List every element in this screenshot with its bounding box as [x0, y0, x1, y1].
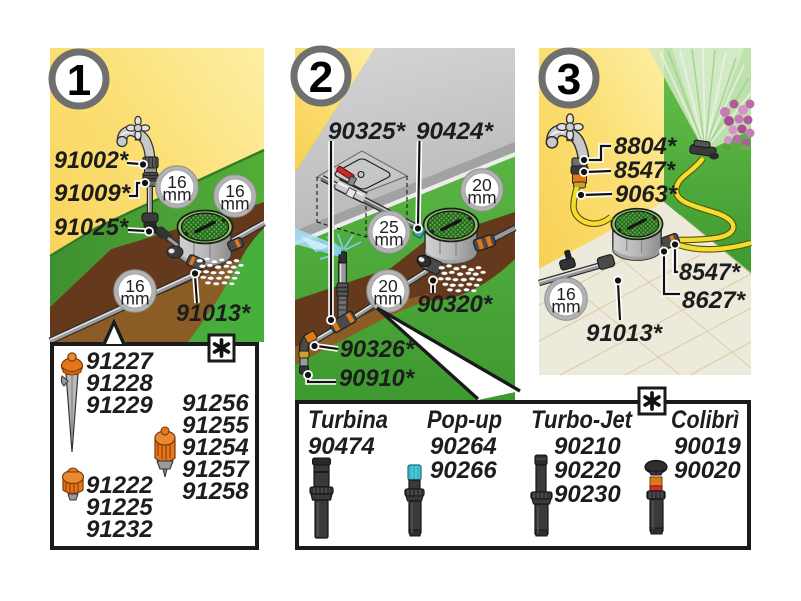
svg-text:91232: 91232 — [86, 516, 153, 543]
svg-text:90020: 90020 — [674, 457, 741, 484]
svg-text:90320*: 90320* — [417, 291, 494, 318]
svg-text:90220: 90220 — [554, 457, 621, 484]
svg-text:90210: 90210 — [554, 433, 621, 460]
svg-text:8804*: 8804* — [614, 133, 678, 160]
svg-text:9063*: 9063* — [615, 181, 679, 208]
svg-text:2: 2 — [309, 53, 333, 102]
svg-text:90326*: 90326* — [340, 336, 416, 363]
svg-text:mm: mm — [220, 194, 249, 214]
svg-text:8547*: 8547* — [679, 259, 742, 286]
svg-text:Pop-up: Pop-up — [427, 406, 502, 434]
svg-text:90424*: 90424* — [416, 118, 495, 145]
svg-text:91025*: 91025* — [54, 214, 130, 241]
svg-text:91258: 91258 — [182, 478, 249, 505]
svg-text:mm: mm — [374, 230, 403, 250]
svg-text:90474: 90474 — [308, 433, 375, 460]
svg-text:mm: mm — [467, 188, 496, 208]
svg-text:mm: mm — [551, 297, 580, 317]
svg-text:8547*: 8547* — [614, 157, 677, 184]
svg-text:mm: mm — [120, 289, 149, 309]
svg-text:90019: 90019 — [674, 433, 741, 460]
svg-text:mm: mm — [162, 185, 191, 205]
svg-text:90266: 90266 — [430, 457, 497, 484]
svg-text:90264: 90264 — [430, 433, 497, 460]
svg-text:91013*: 91013* — [176, 300, 252, 327]
svg-text:91229: 91229 — [86, 392, 153, 419]
svg-text:90910*: 90910* — [339, 365, 416, 392]
svg-text:91009*: 91009* — [54, 180, 132, 207]
svg-text:91013*: 91013* — [586, 320, 664, 347]
svg-text:91002*: 91002* — [54, 147, 130, 174]
svg-text:1: 1 — [67, 56, 91, 105]
svg-text:Turbo-Jet: Turbo-Jet — [531, 406, 633, 434]
svg-text:8627*: 8627* — [682, 287, 747, 314]
svg-text:90325*: 90325* — [328, 118, 407, 145]
svg-text:Colibrì: Colibrì — [671, 406, 739, 434]
svg-text:Turbina: Turbina — [308, 406, 388, 434]
svg-text:90230: 90230 — [554, 481, 621, 508]
svg-text:mm: mm — [373, 289, 402, 309]
svg-text:3: 3 — [557, 55, 581, 104]
